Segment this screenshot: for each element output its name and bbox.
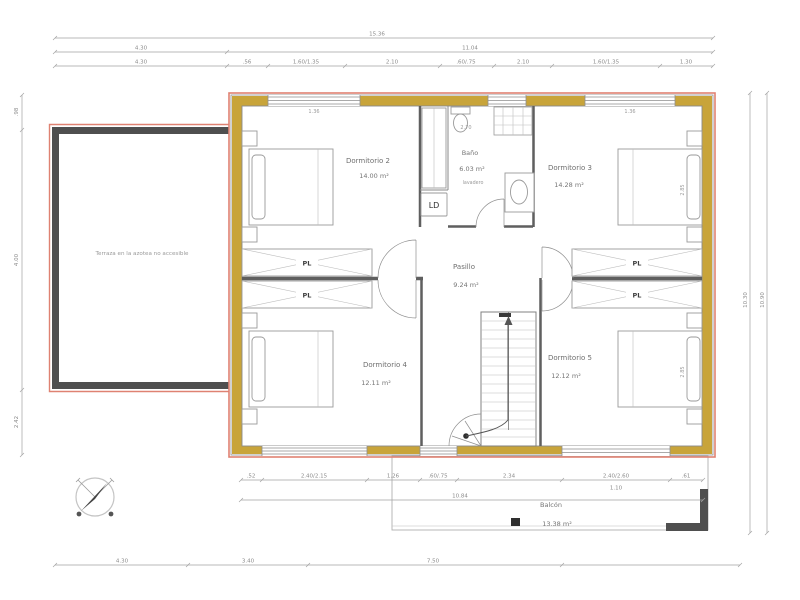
balcony: Balcón 13.38 m² — [392, 456, 708, 531]
room-label-dormitorio-4: Dormitorio 4 — [363, 361, 408, 369]
dim-label: .56 — [243, 60, 252, 66]
wardrobe-label: PL — [633, 260, 642, 268]
balcony-door — [562, 446, 670, 456]
room-area-dormitorio-5: 12.12 m² — [551, 372, 581, 380]
dim-label: 2.70 — [460, 125, 471, 131]
dim-label: 2.10 — [386, 60, 399, 66]
room-label-dormitorio-5: Dormitorio 5 — [548, 354, 592, 362]
dim-label: 1.60/1.35 — [293, 60, 320, 66]
sink-icon — [505, 173, 534, 212]
room-area-dormitorio-4: 12.11 m² — [361, 379, 391, 387]
balcony-area: 13.38 m² — [542, 520, 572, 528]
room-note-bath: lavadero — [463, 180, 484, 186]
window-dormitorio-4 — [262, 446, 367, 456]
dim-label: 2.40/2.60 — [603, 474, 630, 480]
room-label-bath: Baño — [462, 149, 479, 157]
wardrobe-d3: PL — [572, 249, 702, 276]
dim-label: 3.40 — [242, 559, 255, 565]
dim-label: .61 — [682, 474, 691, 480]
window-dormitorio-2 — [268, 95, 360, 106]
window-stair — [420, 446, 457, 456]
dim-label: 1.26 — [387, 474, 400, 480]
wardrobe-label: PL — [303, 292, 312, 300]
floor-plan-page: Terraza en la azotea no accesible Balcón… — [0, 0, 800, 600]
room-label-pasillo: Pasillo — [453, 263, 475, 271]
dim-label: 4.30 — [135, 46, 148, 52]
terrace: Terraza en la azotea no accesible — [50, 125, 230, 392]
compass-icon — [76, 478, 114, 516]
washer-label: LD — [429, 201, 440, 210]
floor-plan-drawing: Terraza en la azotea no accesible Balcón… — [0, 0, 800, 600]
window-bath — [488, 95, 526, 106]
dim-bottom-width: 10.84 — [452, 494, 468, 500]
dim-label: 4.30 — [135, 60, 148, 66]
wardrobe-d5: PL — [572, 281, 702, 308]
dim-label: 11.04 — [462, 46, 478, 52]
dim-label: 2.40/2.15 — [301, 474, 328, 480]
dim-label: 2.85 — [680, 184, 686, 195]
dim-label: .52 — [247, 474, 256, 480]
room-label-dormitorio-3: Dormitorio 3 — [548, 164, 592, 172]
dim-label: 2.10 — [517, 60, 530, 66]
dim-label: 1.36 — [308, 109, 319, 115]
shower-icon — [494, 107, 532, 135]
balcony-label: Balcón — [540, 501, 562, 509]
room-area-dormitorio-2: 14.00 m² — [359, 172, 389, 180]
room-area-bath: 6.03 m² — [459, 165, 485, 173]
dim-label: 4.30 — [116, 559, 129, 565]
wardrobe-label: PL — [303, 260, 312, 268]
room-label-dormitorio-2: Dormitorio 2 — [346, 157, 390, 165]
dim-label: 7.50 — [427, 559, 440, 565]
dim-label: 2.34 — [503, 474, 516, 480]
dim-label: 2.85 — [680, 366, 686, 377]
dim-label: 4.00 — [14, 253, 20, 266]
window-dormitorio-3 — [585, 95, 675, 106]
dim-label: 1.60/1.35 — [593, 60, 620, 66]
dim-label: 1.36 — [624, 109, 635, 115]
dim-label: 2.42 — [14, 416, 20, 428]
wardrobe-label: PL — [633, 292, 642, 300]
room-area-dormitorio-3: 14.28 m² — [554, 181, 584, 189]
room-area-pasillo: 9.24 m² — [453, 281, 479, 289]
terrace-label: Terraza en la azotea no accesible — [95, 251, 189, 257]
dim-label: .60/.75 — [428, 474, 448, 480]
dim-label: 10.30 — [743, 292, 749, 308]
area-legend-swatch — [511, 518, 520, 526]
dim-label: .60/.75 — [456, 60, 476, 66]
dim-label: 1.10 — [610, 486, 623, 492]
wardrobe-d4: PL — [242, 281, 372, 308]
dim-label: .98 — [14, 107, 20, 116]
dim-label: 10.90 — [760, 292, 766, 308]
dim-overall-width: 15.36 — [369, 32, 385, 38]
dim-label: 1.30 — [680, 60, 693, 66]
wardrobe-d2: PL — [242, 249, 372, 276]
